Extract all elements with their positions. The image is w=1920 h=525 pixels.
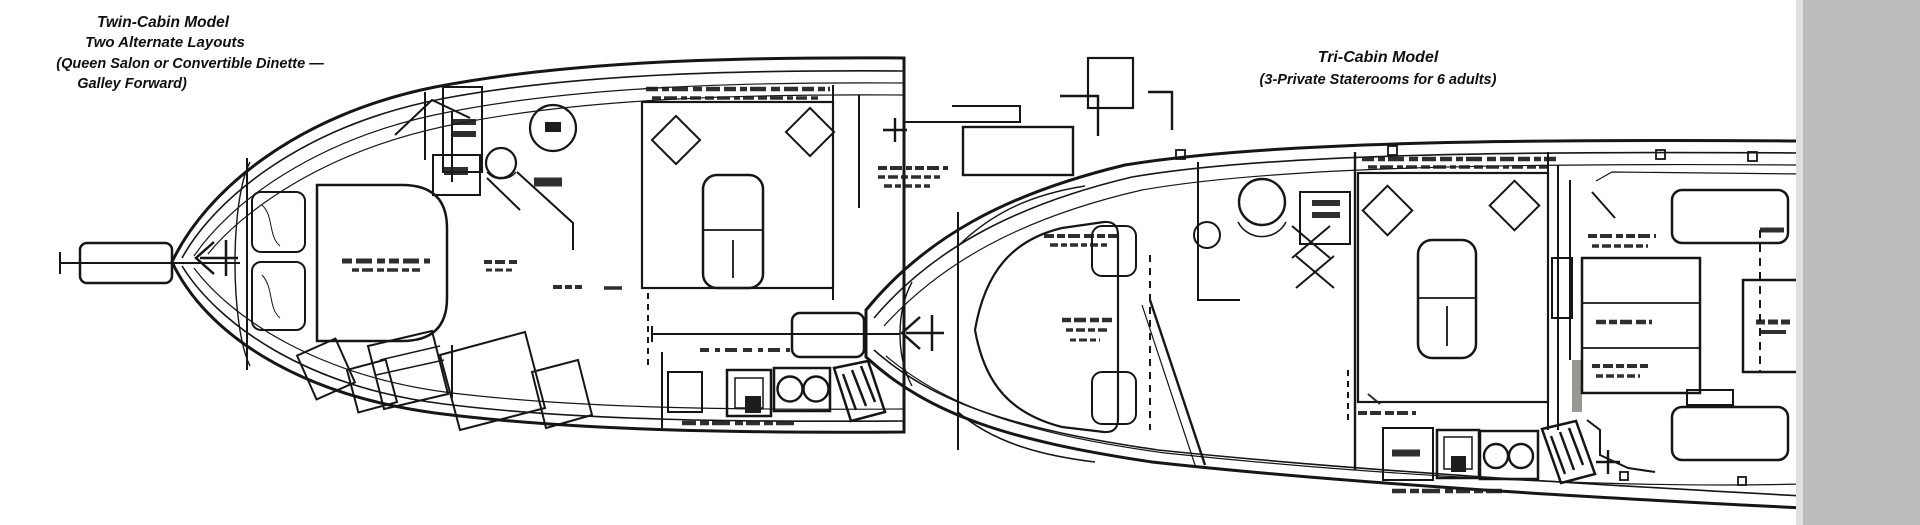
salon-carpet [642,102,833,288]
toilet [1239,179,1285,225]
galley-stove [1437,430,1479,478]
berth-pillow [1092,372,1136,424]
transom-step [904,106,1020,122]
illegible-berth-label [342,261,430,270]
right-plan-title: Tri-Cabin Model (3-Private Staterooms fo… [1260,49,1497,88]
illegible-label [1044,236,1118,245]
dresser-stippled [440,332,545,430]
salon-table [703,175,763,288]
illegible-salon-note [646,89,830,98]
aft-deck [859,95,1020,208]
aft-galley [662,350,885,428]
forward-galley [395,92,480,195]
bow-pulpit [60,243,240,283]
callout-lines [963,58,1172,175]
salon-table [1418,240,1476,358]
galley-double-sink [1480,431,1538,479]
companionway-steps [368,331,448,409]
right-title-line-2: (3-Private Staterooms for 6 adults) [1260,72,1497,88]
anchor-icon [902,315,944,351]
folding-chairs [1292,226,1334,288]
scan-bar [1803,0,1920,525]
left-plan-title: Twin-Cabin Model Two Alternate Layouts (… [56,14,324,92]
salon-chair [652,116,700,164]
illegible-label [484,262,622,288]
deck-cleat [1656,150,1665,159]
twin-cabin-plan [60,58,1020,432]
left-title-line-1: Twin-Cabin Model [97,14,230,31]
illegible-berth-label [1062,320,1112,340]
companionway-ladder [834,361,885,421]
forward-stateroom [958,186,1205,468]
head-compartment [1194,162,1350,300]
toilet [486,148,516,178]
head-compartment [486,105,576,250]
salon-chair [1490,181,1539,230]
aft-galley [1383,421,1620,491]
berth-pillow [252,262,305,330]
aft-berth [1672,407,1788,460]
scanned-brochure-page: Twin-Cabin Model Two Alternate Layouts (… [0,0,1920,525]
floor-plans-figure: Twin-Cabin Model Two Alternate Layouts (… [0,0,1920,525]
angled-wall [1150,300,1205,465]
left-title-line-4: Galley Forward) [77,76,187,92]
salon [1348,152,1558,430]
salon-carpet [1358,173,1548,402]
side-berth [1743,280,1801,372]
hanging-locker [443,87,482,172]
berth-pillow [252,192,305,252]
scan-bar-edge [1796,0,1804,525]
salon-chair [786,108,834,156]
mid-cabin-berth [1582,258,1700,393]
illegible-callout-text [878,168,948,186]
hull-outline [866,140,1803,508]
salon-chair [1363,186,1412,235]
deck-cleat [1620,472,1628,480]
queen-island-berth [975,222,1118,432]
aft-staterooms [1552,180,1801,472]
deck-cleat [1738,477,1746,485]
companionway-ladder [1542,421,1595,483]
salon [642,85,834,300]
galley-double-sink [774,368,830,411]
aft-berth [1672,190,1788,243]
right-title-line-1: Tri-Cabin Model [1318,49,1439,66]
deck-cleat [1388,146,1397,155]
left-title-line-3: (Queen Salon or Convertible Dinette — [56,56,324,72]
illegible-label [1358,394,1416,413]
tri-cabin-plan [652,58,1803,508]
stepped-wall [1587,420,1655,472]
door-swing [1592,192,1615,218]
berth-pillow [1092,226,1136,276]
illegible-cabin-label [1588,236,1656,246]
left-title-line-2: Two Alternate Layouts [85,34,245,51]
hanging-locker [1300,192,1350,244]
